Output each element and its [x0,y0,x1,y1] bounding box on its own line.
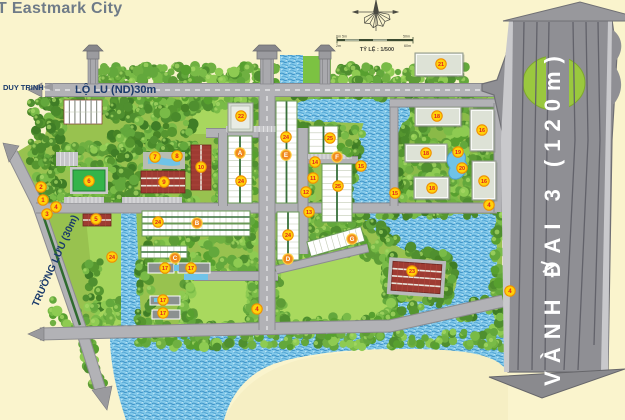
svg-text:3: 3 [45,211,49,218]
svg-text:18: 18 [423,151,429,157]
svg-text:16: 16 [481,179,487,185]
svg-text:D: D [286,256,291,263]
svg-text:G: G [350,236,355,243]
svg-text:4: 4 [54,204,58,211]
svg-text:4: 4 [487,202,491,209]
svg-text:8: 8 [175,153,179,160]
svg-text:21: 21 [438,62,444,68]
svg-text:11: 11 [310,176,316,182]
svg-text:17: 17 [162,266,168,272]
svg-text:7: 7 [153,154,157,161]
svg-text:18: 18 [429,186,435,192]
svg-text:15: 15 [392,191,398,197]
svg-text:24: 24 [283,135,289,141]
svg-text:20: 20 [459,166,465,172]
svg-text:50m: 50m [403,35,410,39]
svg-text:17: 17 [160,298,166,304]
svg-text:5: 5 [94,216,98,223]
svg-text:9: 9 [162,179,166,186]
svg-text:24: 24 [238,179,244,185]
svg-text:17: 17 [188,266,194,272]
svg-text:TỶ LỆ : 1/500: TỶ LỆ : 1/500 [360,45,394,53]
svg-text:17: 17 [160,311,166,317]
svg-text:LỘ LU (ND)30m: LỘ LU (ND)30m [75,83,157,96]
svg-text:10: 10 [198,165,204,171]
svg-text:A: A [238,150,243,157]
svg-text:B: B [195,220,200,227]
svg-text:4: 4 [255,306,259,313]
svg-text:25: 25 [327,136,333,142]
svg-text:24: 24 [109,255,115,261]
svg-text:25: 25 [335,184,341,190]
svg-text:4: 4 [508,288,512,295]
svg-text:6: 6 [87,178,91,185]
svg-text:14: 14 [312,160,318,166]
svg-text:VÀNH ĐAI 3 (120m): VÀNH ĐAI 3 (120m) [540,48,565,386]
svg-text:16: 16 [479,128,485,134]
svg-text:E: E [284,152,288,159]
svg-text:24: 24 [155,220,161,226]
svg-text:22: 22 [238,114,244,120]
svg-text:2m: 2m [336,44,341,48]
svg-text:DUY TRINH: DUY TRINH [3,83,44,92]
svg-text:60m: 60m [404,44,411,48]
svg-text:F: F [335,154,339,161]
svg-text:19: 19 [455,150,461,156]
svg-text:2: 2 [39,184,43,191]
svg-text:0m 5m: 0m 5m [336,35,347,39]
svg-text:C: C [173,255,178,262]
svg-text:15: 15 [358,164,364,170]
svg-text:13: 13 [306,210,312,216]
svg-text:23: 23 [409,269,415,275]
svg-text:T Eastmark City: T Eastmark City [0,0,122,17]
svg-text:18: 18 [434,114,440,120]
svg-text:1: 1 [41,197,45,204]
svg-text:12: 12 [303,190,309,196]
svg-text:24: 24 [285,233,291,239]
